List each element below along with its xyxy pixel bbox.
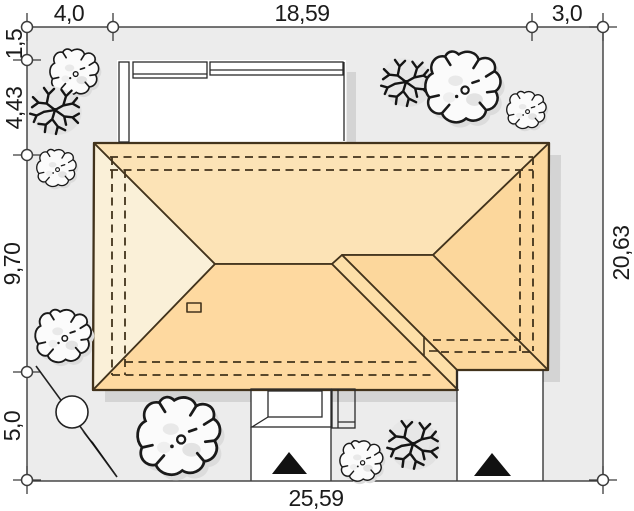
chimney [187,303,201,312]
roof [93,143,549,390]
dim-bottom-1: 25,59 [288,485,343,511]
dim-top-3: 3,0 [552,0,582,26]
dim-top-2: 18,59 [274,0,329,26]
dim-right-1: 20,63 [608,225,634,280]
site-plan-canvas: 4,0 18,59 3,0 1,5 4,43 9,70 5,0 20,63 25… [0,0,634,511]
dim-left-2: 4,43 [1,87,27,130]
dim-left-4: 5,0 [0,411,25,441]
site-plan-page: 4,0 18,59 3,0 1,5 4,43 9,70 5,0 20,63 25… [0,0,634,511]
dim-top-1: 4,0 [54,0,84,26]
terrace-shadow [347,72,356,142]
terrace-area [117,60,346,142]
dim-left-1: 1,5 [1,29,27,59]
dim-left-3: 9,70 [0,243,25,286]
